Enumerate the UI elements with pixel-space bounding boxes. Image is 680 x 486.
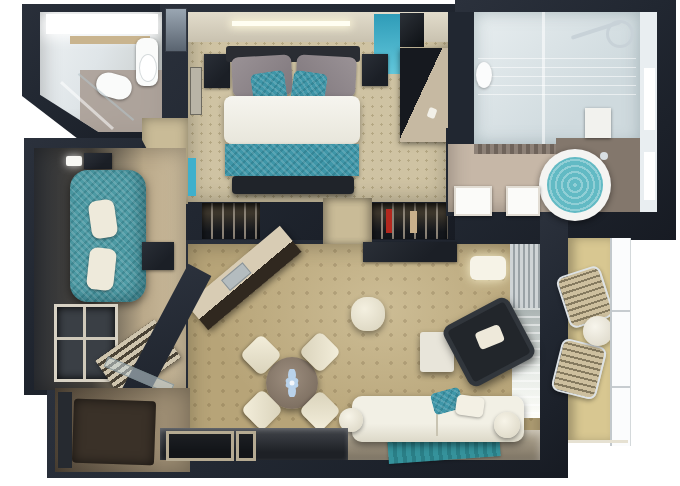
wall-art-frame	[190, 67, 202, 115]
sink-left	[454, 186, 492, 216]
threshold-rail	[236, 431, 256, 461]
chrome-shower-head	[606, 20, 634, 48]
white-duvet	[224, 96, 360, 144]
lounge-pillow-2	[86, 247, 117, 292]
shelf-divider-v	[83, 307, 86, 379]
window-2	[644, 152, 655, 200]
window-1	[644, 68, 655, 130]
teal-bed-runner	[225, 144, 359, 176]
wall-console	[363, 242, 457, 262]
sofa-white-pillow	[455, 394, 486, 418]
flower-centerpiece-icon	[278, 369, 306, 397]
master-toilet	[476, 62, 492, 88]
tan-garment	[410, 211, 417, 233]
wall-lamp	[470, 256, 506, 280]
lounge-pillow-1	[87, 198, 118, 239]
bedroom-doorway-carpet	[323, 198, 372, 246]
wardrobe-left	[202, 203, 260, 239]
shower-glass-divider	[542, 12, 545, 144]
tub-cabinet	[585, 108, 611, 138]
floor-plan	[0, 0, 680, 486]
jacuzzi-water	[547, 157, 603, 213]
glass-railing	[610, 238, 631, 446]
jacuzzi-faucet	[600, 152, 608, 160]
left-wall-upper	[448, 12, 474, 144]
white-pouf	[351, 297, 385, 331]
red-garment	[386, 209, 392, 233]
armchair-pillow	[474, 324, 505, 350]
railing-bar-1	[612, 310, 630, 312]
balcony-edge	[568, 440, 628, 443]
shelf-divider-h	[57, 337, 115, 340]
ceiling-light	[66, 156, 82, 166]
lounge-side-table	[142, 242, 174, 270]
vanity-lit-counter	[46, 14, 158, 34]
foot-bench	[232, 176, 354, 194]
dresser-item	[427, 107, 438, 119]
sofa-bolster-right	[494, 412, 520, 438]
bedroom	[188, 12, 448, 202]
glass-panel	[165, 8, 187, 52]
gloss-cabinet	[400, 13, 424, 47]
master-bathroom	[448, 12, 657, 212]
door-mat	[72, 399, 156, 466]
counter-sink	[221, 262, 251, 291]
teal-wall-strip	[188, 158, 196, 196]
wardrobe-right	[372, 203, 448, 239]
headwall-light-bar	[232, 21, 350, 26]
entry-side-wall	[58, 392, 72, 468]
shower-glass-shelves	[478, 58, 636, 102]
sink-right	[506, 186, 540, 216]
sink-basin	[139, 54, 157, 82]
wall-tv	[84, 153, 112, 169]
vertical-blinds	[510, 244, 540, 308]
entry-threshold	[160, 428, 348, 460]
balcony-table	[583, 316, 613, 346]
railing-bar-2	[612, 386, 630, 388]
dresser-unit	[400, 48, 448, 142]
threshold-frame	[166, 431, 234, 461]
nightstand-right	[362, 54, 388, 86]
